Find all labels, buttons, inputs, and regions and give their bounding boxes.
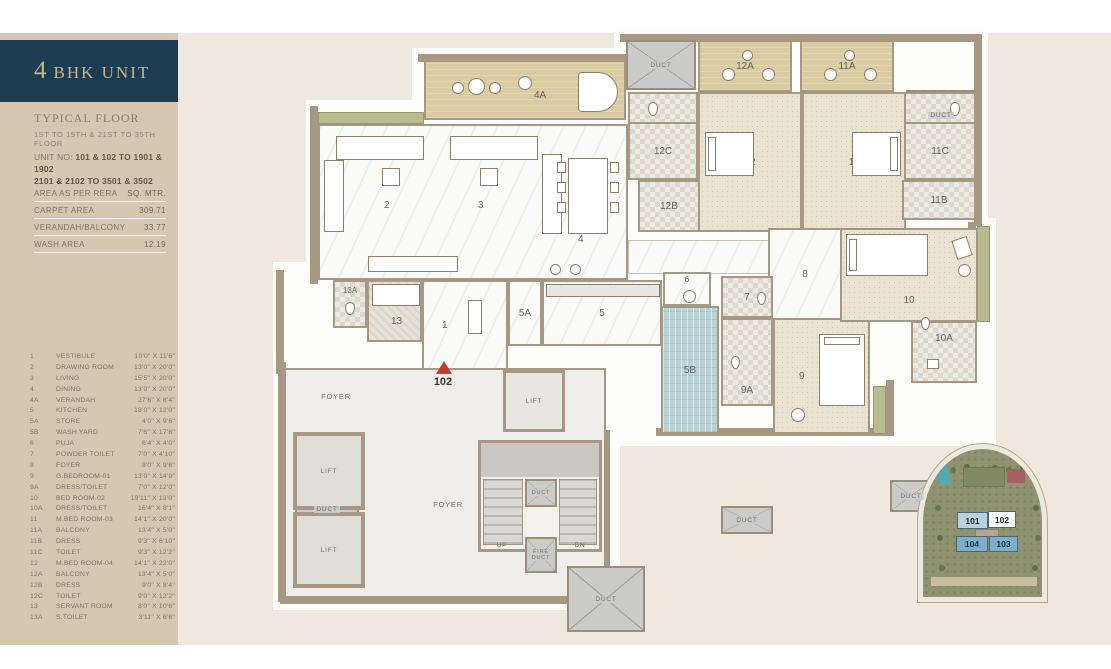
chair-icon — [489, 82, 501, 94]
chair-icon — [762, 68, 775, 81]
room-vestibule-1: 1 — [422, 280, 508, 370]
room-store-5a: 5A — [508, 280, 542, 346]
kitchen-counter-icon — [546, 284, 660, 297]
wall-segment — [276, 270, 284, 374]
room-label: 13A — [343, 286, 357, 295]
pillow — [890, 137, 898, 171]
room-dress-12b: 12B — [638, 180, 700, 232]
room-label: 5B — [684, 365, 696, 376]
room-dress-toilet-10a: 10A — [911, 321, 977, 383]
fire-duct: FIRE DUCT — [525, 537, 557, 573]
keyplan-unit-101: 101 — [957, 512, 988, 529]
room-bedroom-10: 10 — [840, 228, 978, 322]
chair-icon — [557, 162, 566, 173]
pillow — [824, 337, 860, 345]
sofa-icon — [450, 136, 538, 160]
room-wash-yard-5b: 5B — [661, 306, 719, 434]
room-label: 1 — [442, 320, 448, 331]
pillow — [849, 239, 857, 271]
room-puja-6: 6 — [663, 272, 711, 306]
room-label: 5 — [599, 308, 605, 319]
table-icon — [518, 76, 532, 90]
bench-icon — [468, 300, 482, 334]
window-strip — [977, 226, 990, 322]
room-mbed-12: 12 — [698, 92, 802, 232]
chair-icon — [610, 162, 619, 173]
chair-icon — [557, 182, 566, 193]
room-kitchen-5: 5 — [542, 280, 662, 346]
room-label: 8 — [802, 269, 808, 280]
staircase: DUCT FIRE DUCT — [478, 440, 602, 552]
console-icon — [368, 256, 458, 272]
room-label: 5A — [519, 308, 531, 319]
duct-label: DUCT — [648, 62, 673, 69]
chair-icon — [791, 408, 805, 422]
sofa-icon — [336, 136, 424, 160]
room-label: 2 — [384, 200, 390, 211]
bed-icon — [819, 334, 865, 406]
room-label: 11B — [930, 195, 947, 206]
duct-label: DUCT — [928, 112, 953, 119]
window-strip — [873, 386, 886, 434]
room-label: 7 — [744, 292, 750, 303]
keyplan-unit-104: 104 — [956, 536, 988, 552]
duct-stair: DUCT — [525, 479, 557, 507]
table-icon — [844, 50, 855, 61]
bed-icon — [846, 234, 928, 276]
chair-icon — [557, 202, 566, 213]
duct-label: DUCT — [593, 596, 618, 603]
room-dress-toilet-9a: 9A — [721, 318, 773, 406]
foyer-label: FOYER — [418, 500, 478, 509]
wall-segment — [886, 380, 894, 436]
room-label: 12B — [660, 201, 678, 212]
chair-icon — [610, 182, 619, 193]
lawn-icon — [963, 467, 1005, 487]
room-label: 9 — [799, 371, 805, 382]
pool-icon — [935, 462, 952, 486]
room-gbedroom-9: 9 — [773, 318, 870, 434]
room-label: 13 — [391, 316, 402, 327]
room-s-toilet-13a: 13A — [333, 280, 367, 328]
keyplan-site: 101 102 104 103 — [923, 449, 1042, 597]
table-icon — [468, 78, 485, 95]
wc-icon — [921, 317, 930, 330]
room-servant-13: 13 — [367, 280, 422, 342]
sofa-icon — [324, 160, 344, 232]
stair-landing — [481, 443, 599, 477]
entry-arrow-icon — [436, 361, 452, 374]
room-powder-7: 7 — [721, 276, 773, 318]
duct-label: DUCT — [734, 517, 759, 524]
bed-icon — [372, 284, 420, 306]
bed-icon — [852, 132, 901, 176]
desk-chair-icon — [951, 236, 972, 260]
chair-icon — [722, 68, 735, 81]
chair-icon — [452, 82, 464, 94]
table-icon — [742, 50, 753, 61]
room-dress-11b: 11B — [902, 180, 976, 220]
keyplan-unit-103: 103 — [989, 536, 1018, 552]
foyer-label: FOYER — [306, 392, 366, 401]
coffee-table-icon — [382, 168, 400, 186]
room-label: 10A — [935, 333, 953, 344]
duct-label: DUCT — [530, 490, 552, 496]
duct-label: DUCT — [314, 506, 339, 513]
chair-icon — [958, 264, 971, 277]
wc-icon — [345, 302, 355, 315]
court-icon — [1007, 469, 1025, 483]
coffee-table-icon — [480, 168, 498, 186]
corridor — [628, 240, 774, 274]
room-toilet-12c: 12C — [628, 122, 698, 180]
chair-icon — [610, 202, 619, 213]
keyplan-unit-102-highlighted: 102 — [988, 511, 1016, 528]
room-label: 11C — [931, 146, 949, 157]
wc-icon — [648, 102, 658, 116]
duct-label: DUCT — [898, 493, 923, 500]
lift-label: LIFT — [321, 547, 338, 554]
room-label: 4A — [534, 90, 546, 101]
stair-flight-down — [559, 479, 597, 545]
chair-icon — [864, 68, 877, 81]
stair-flight-up — [483, 479, 523, 545]
road-strip — [931, 577, 1037, 586]
stairs-dn-label: DN — [566, 542, 594, 549]
room-label: 9A — [741, 385, 753, 396]
stool-icon — [570, 264, 581, 275]
room-label: 6 — [685, 274, 690, 284]
room-toilet-11c: 11C — [904, 122, 976, 180]
room-label: 10 — [903, 295, 914, 306]
floorplan-page: 4BHK UNIT TYPICAL FLOOR 1ST TO 19TH & 21… — [0, 0, 1111, 669]
basin-icon — [927, 359, 939, 369]
bed-icon — [705, 132, 754, 176]
wc-icon — [731, 356, 740, 369]
keyplan-inset: 101 102 104 103 — [917, 443, 1048, 603]
room-label: 3 — [478, 200, 484, 211]
toilet-11-upper — [904, 92, 976, 124]
room-label: 12A — [736, 61, 754, 72]
pillow — [708, 137, 716, 171]
stool-icon — [550, 264, 561, 275]
piano-icon — [578, 72, 618, 112]
window-strip — [318, 112, 424, 124]
lift-label: LIFT — [526, 398, 543, 405]
wall-segment — [310, 106, 318, 284]
toilet-12-upper — [628, 92, 698, 124]
room-label: 4 — [578, 234, 584, 245]
wc-icon — [757, 292, 766, 305]
room-verandah-4a: 4A — [424, 60, 626, 120]
room-label: 11A — [838, 61, 855, 72]
stairs-up-label: UP — [488, 542, 516, 549]
lift-mid: LIFT — [503, 370, 565, 432]
room-label: 12C — [654, 146, 672, 157]
lift-label: LIFT — [321, 468, 338, 475]
room-foyer-8: 8 — [768, 228, 842, 320]
room-balcony-12a: 12A — [698, 40, 792, 92]
room-living-block: 2 3 4 — [318, 124, 628, 280]
fire-duct-label: FIRE DUCT — [527, 549, 555, 561]
duct-lobby: DUCT — [567, 566, 645, 632]
duct-top-left: DUCT — [626, 40, 696, 90]
room-mbed-11: 11 — [802, 92, 906, 232]
room-balcony-11a: 11A — [800, 40, 894, 92]
chair-icon — [824, 68, 837, 81]
entry-unit-number: 102 — [425, 376, 461, 388]
duct-below-9a: DUCT — [721, 506, 773, 534]
flower-icon — [683, 290, 696, 303]
lift-1: LIFT — [293, 432, 365, 510]
dining-table-icon — [568, 158, 608, 234]
lift-2: LIFT — [293, 512, 365, 588]
